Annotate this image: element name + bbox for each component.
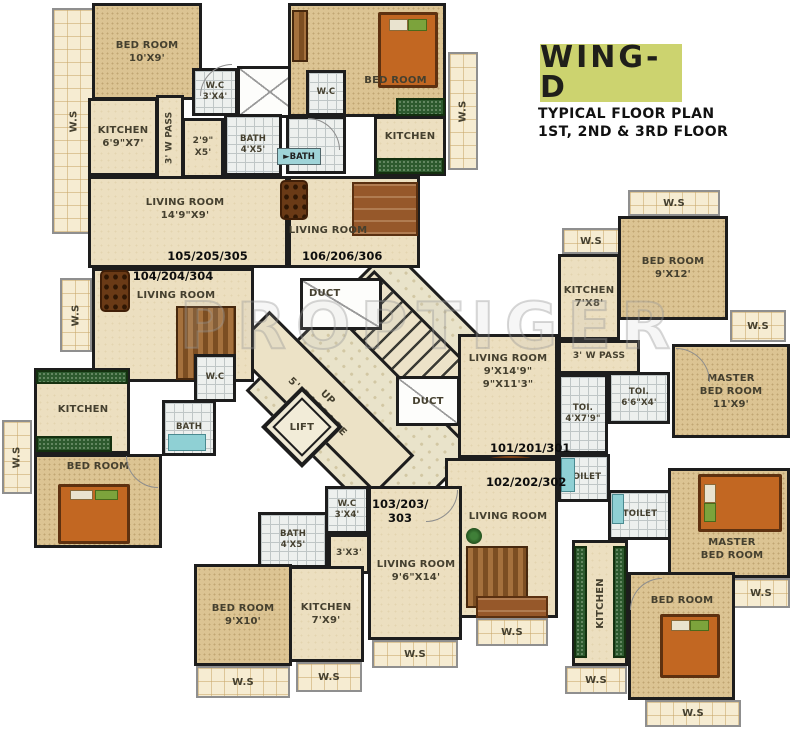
unit106-living-label: LIVING ROOM — [288, 224, 368, 237]
unit104-bedroom-label: BED ROOM — [60, 460, 136, 473]
unit105-store: 2'9" X5' — [182, 118, 224, 178]
unit103-wc-label: W.C 3'X4' — [335, 499, 360, 521]
kitchen-counter — [574, 546, 587, 658]
title-subtitle-2: 1ST, 2ND & 3RD FLOOR — [538, 124, 728, 142]
duct-top: DUCT — [300, 278, 382, 330]
unit105-bath: BATH 4'X5' — [224, 114, 282, 176]
wardrobe — [292, 10, 308, 62]
unit102-living-label: LIVING ROOM — [468, 510, 548, 523]
ws-strip-103-living: W.S — [372, 640, 458, 668]
unit105-bedroom: BED ROOM 10'X9' — [92, 3, 202, 100]
ws-label: W.S — [580, 235, 602, 248]
unit105-wpass-label: 3' W PASS — [164, 111, 176, 163]
unit105-kitchen-label: KITCHEN 6'9"X7' — [98, 124, 149, 150]
duct-right-label: DUCT — [412, 395, 443, 408]
bathtub — [168, 434, 206, 451]
ws-strip-101-kitchen: W.S — [562, 228, 620, 254]
unit105-kitchen: KITCHEN 6'9"X7' — [88, 98, 158, 176]
unit104-living-label: LIVING ROOM — [134, 289, 218, 302]
unit103-store-label: 3'X3' — [336, 548, 362, 560]
unit101-wide-pass: 3' W PASS — [558, 340, 640, 374]
ws-strip-102-living: W.S — [476, 618, 548, 646]
unit102-kitchen-label: KITCHEN — [594, 578, 607, 629]
ws-label: W.S — [585, 674, 607, 687]
unit105-bedroom-label: BED ROOM 10'X9' — [116, 39, 179, 65]
unit105-id: 105/205/305 — [145, 250, 270, 264]
unit101-toi-long-label: TOI. 4'X7'9" — [565, 403, 600, 425]
unit103-bath-label: BATH 4'X5' — [280, 529, 306, 551]
unit104-bedroom2: BED ROOM 9'X10' — [194, 564, 292, 666]
unit106-wc: W.C — [306, 70, 346, 116]
dining-table — [280, 180, 308, 220]
unit104-wc: W.C — [194, 354, 236, 402]
unit101-wpass-label: 3' W PASS — [573, 351, 625, 363]
unit101-kitchen-label: KITCHEN 7'X8' — [564, 284, 615, 310]
ws-label: W.S — [682, 707, 704, 720]
floor-plan: UP 5' PASSAGE DUCT DUCT LIFT W.S BED ROO… — [0, 0, 800, 729]
unit102-id: 102/202/302 — [486, 476, 562, 490]
unit101-living-label: LIVING ROOM 9'X14'9" 9"X11'3" — [462, 352, 554, 391]
ws-strip-102-right: W.S — [732, 578, 790, 608]
unit101-kitchen: KITCHEN 7'X8' — [558, 254, 620, 340]
unit104-kitchen-label: KITCHEN — [52, 403, 114, 416]
ws-label: W.S — [750, 587, 772, 600]
unit101-toi-small: TOI. 6'6"X4' — [608, 372, 670, 424]
ws-label: W.S — [456, 100, 469, 122]
ws-label: W.S — [501, 626, 523, 639]
bed-furniture — [58, 484, 130, 544]
ws-label: W.S — [663, 197, 685, 210]
unit103-kitchen-label: KITCHEN 7'X9' — [301, 601, 352, 627]
ws-strip-106-right: W.S — [448, 52, 478, 170]
unit106-bedroom-label: BED ROOM — [348, 74, 443, 87]
unit106-kitchen-label: KITCHEN — [380, 130, 440, 143]
unit104-bath-label: BATH — [176, 422, 202, 433]
unit106-wc-label: W.C — [317, 87, 336, 98]
bed-furniture — [698, 474, 782, 532]
bathtub — [612, 494, 624, 524]
ws-strip-104-left-low: W.S — [2, 420, 32, 494]
unit101-toi-small-label: TOI. 6'6"X4' — [621, 387, 656, 409]
unit105-wide-pass: 3' W PASS — [156, 95, 184, 180]
unit103-kitchen: KITCHEN 7'X9' — [288, 566, 364, 662]
ws-label: W.S — [404, 648, 426, 661]
unit105-store-label: 2'9" X5' — [193, 136, 214, 159]
unit103-bath: BATH 4'X5' — [258, 512, 328, 568]
unit103-id: 103/203/ 303 — [372, 498, 428, 526]
unit103-wc: W.C 3'X4' — [325, 486, 369, 534]
kitchen-counter — [36, 436, 112, 452]
ws-strip-102-bedroom: W.S — [645, 700, 741, 727]
ws-strip-104-left: W.S — [60, 278, 92, 352]
lift-label: LIFT — [290, 420, 315, 433]
ws-label: W.S — [232, 676, 254, 689]
kitchen-counter — [613, 546, 626, 658]
unit106-id: 106/206/306 — [302, 250, 374, 264]
kitchen-counter — [36, 370, 128, 384]
ws-label: W.S — [318, 671, 340, 684]
unit104-wc-label: W.C — [206, 372, 225, 383]
unit103-living-label: LIVING ROOM 9'6"X14' — [372, 558, 460, 584]
unit104-bedroom2-label: BED ROOM 9'X10' — [212, 602, 275, 628]
unit106-bath-label: ►BATH — [277, 148, 321, 165]
ws-label: W.S — [69, 304, 82, 326]
unit105-living-label: LIVING ROOM 14'9"X9' — [120, 196, 250, 222]
unit102-toilet-label: TOILET — [623, 509, 657, 520]
title-subtitle-1: TYPICAL FLOOR PLAN — [538, 106, 714, 124]
kitchen-counter — [396, 98, 445, 116]
unit102-master-label: MASTER BED ROOM — [690, 536, 774, 562]
ws-strip-101-top: W.S — [628, 190, 720, 216]
ws-label: W.S — [67, 110, 80, 132]
duct-right: DUCT — [396, 376, 460, 426]
ws-label: W.S — [747, 320, 769, 333]
unit101-bedroom-label: BED ROOM 9'X12' — [642, 255, 705, 281]
ws-label: W.S — [10, 446, 23, 468]
ws-strip-104-bedroom2: W.S — [196, 666, 290, 698]
duct-top-label: DUCT — [309, 287, 340, 300]
kitchen-counter — [376, 158, 444, 174]
sofa — [476, 596, 548, 618]
ws-strip-102-kitchen: W.S — [565, 666, 627, 694]
unit104-id: 104/204/304 — [130, 270, 216, 284]
ws-strip-103-kitchen: W.S — [296, 662, 362, 692]
plant — [466, 528, 482, 544]
title-box: WING-D — [540, 44, 682, 102]
wing-title: WING-D — [540, 43, 682, 103]
dining-table — [100, 270, 130, 312]
unit105-bath-label: BATH 4'X5' — [240, 134, 266, 156]
unit101-bedroom: BED ROOM 9'X12' — [618, 216, 728, 320]
unit101-id: 101/201/301 — [490, 442, 562, 456]
ws-strip-101-right: W.S — [730, 310, 786, 342]
bed-furniture — [660, 614, 720, 678]
